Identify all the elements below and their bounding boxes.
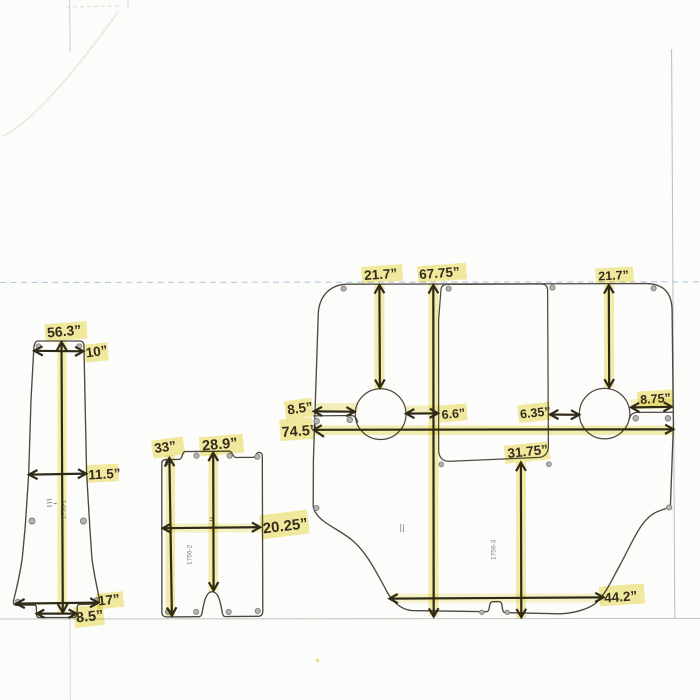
svg-text:1756-2: 1756-2 [187,544,194,565]
svg-text:8.5”: 8.5” [75,608,104,627]
svg-text:6.6”: 6.6” [441,406,466,422]
svg-text:44.2”: 44.2” [604,588,638,605]
svg-text:56.3”: 56.3” [46,322,82,341]
svg-text:28.9”: 28.9” [201,435,238,454]
svg-text:8.75”: 8.75” [640,391,671,407]
svg-text:21.7”: 21.7” [598,268,629,284]
svg-text:67.75”: 67.75” [419,264,460,282]
svg-text:74.5”: 74.5” [281,423,318,441]
svg-text:21.7”: 21.7” [364,266,398,283]
svg-text:10”: 10” [85,343,109,361]
svg-text:11.5”: 11.5” [88,466,121,483]
svg-text:33”: 33” [153,438,177,456]
svg-text:1756-3: 1756-3 [491,539,498,560]
